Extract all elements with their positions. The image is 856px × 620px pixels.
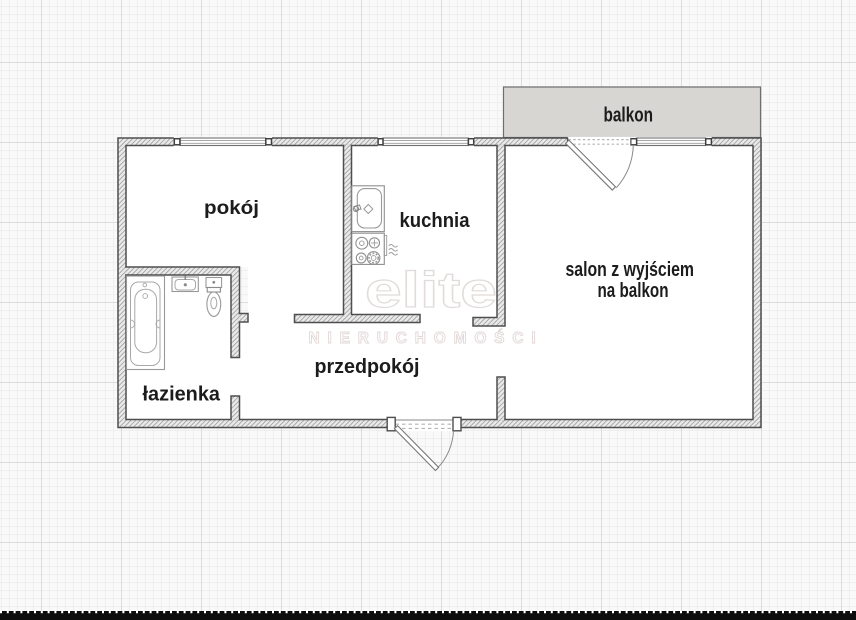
svg-text:NIERUCHOMOŚCI: NIERUCHOMOŚCI [309,329,544,347]
svg-text:elite: elite [365,262,497,318]
svg-text:łazienka: łazienka [143,384,221,406]
svg-text:balkon: balkon [604,105,654,127]
svg-text:przedpokój: przedpokój [315,356,420,378]
svg-text:kuchnia: kuchnia [400,210,471,232]
svg-text:na balkon: na balkon [598,280,669,302]
svg-text:salon z wyjściem: salon z wyjściem [566,259,695,281]
svg-text:pokój: pokój [204,197,259,219]
